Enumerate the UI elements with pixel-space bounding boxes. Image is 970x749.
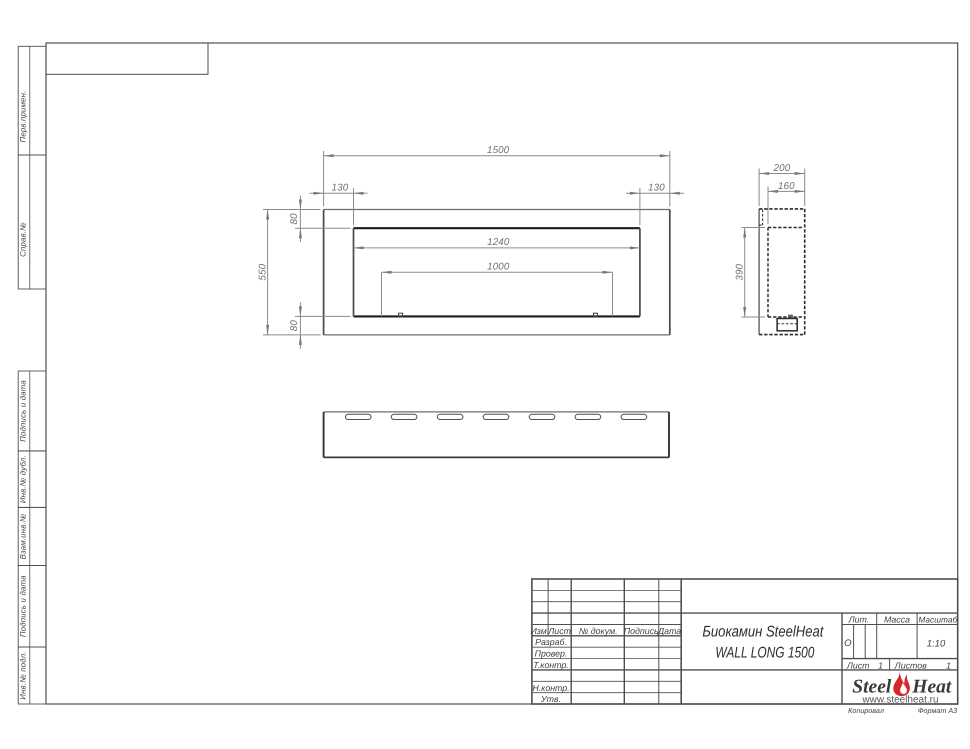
svg-text:№ докум.: № докум. [579, 626, 618, 636]
svg-text:1: 1 [946, 661, 951, 671]
svg-text:1240: 1240 [487, 237, 510, 248]
svg-text:Н.контр.: Н.контр. [532, 683, 569, 693]
svg-text:Формат А3: Формат А3 [918, 706, 957, 715]
svg-text:80: 80 [289, 320, 300, 332]
svg-text:Подпись и дата: Подпись и дата [18, 380, 27, 442]
svg-text:160: 160 [778, 181, 795, 192]
svg-text:Т.контр.: Т.контр. [533, 660, 569, 670]
svg-text:Лист: Лист [846, 661, 870, 671]
svg-text:80: 80 [289, 213, 300, 225]
svg-text:1500: 1500 [487, 145, 510, 156]
svg-text:Взам.инв.№: Взам.инв.№ [18, 513, 27, 559]
svg-text:Подпись: Подпись [624, 626, 659, 636]
svg-text:Масса: Масса [884, 615, 910, 625]
svg-text:Лит.: Лит. [848, 615, 870, 625]
svg-text:О: О [844, 638, 852, 649]
svg-text:130: 130 [332, 183, 349, 194]
svg-text:390: 390 [734, 263, 745, 280]
svg-text:Инв.№ дубл.: Инв.№ дубл. [18, 455, 27, 503]
svg-text:Справ.№: Справ.№ [18, 222, 27, 257]
svg-text:Провер.: Провер. [535, 649, 568, 659]
svg-text:Инв.№ подл.: Инв.№ подл. [18, 651, 27, 699]
svg-text:WALL LONG 1500: WALL LONG 1500 [715, 645, 814, 662]
svg-text:Дата: Дата [657, 626, 681, 636]
svg-text:200: 200 [773, 163, 791, 174]
svg-text:Изм.: Изм. [531, 626, 550, 636]
svg-text:1: 1 [878, 661, 883, 671]
svg-text:Разраб.: Разраб. [535, 637, 567, 647]
svg-text:550: 550 [257, 263, 268, 280]
svg-text:www.steelheat.ru: www.steelheat.ru [861, 695, 938, 706]
svg-text:Лист: Лист [547, 626, 571, 636]
svg-text:130: 130 [648, 183, 665, 194]
svg-text:Биокамин SteelHeat: Биокамин SteelHeat [702, 624, 824, 641]
svg-text:Листов: Листов [894, 661, 927, 671]
svg-text:Копировал: Копировал [848, 706, 884, 715]
svg-text:1000: 1000 [487, 262, 510, 273]
svg-text:Масштаб: Масштаб [918, 615, 957, 625]
svg-text:1:10: 1:10 [927, 638, 946, 649]
svg-text:Утв.: Утв. [540, 694, 561, 704]
svg-text:Подпись и дата: Подпись и дата [18, 575, 27, 637]
svg-text:Перв.примен.: Перв.примен. [18, 90, 27, 142]
